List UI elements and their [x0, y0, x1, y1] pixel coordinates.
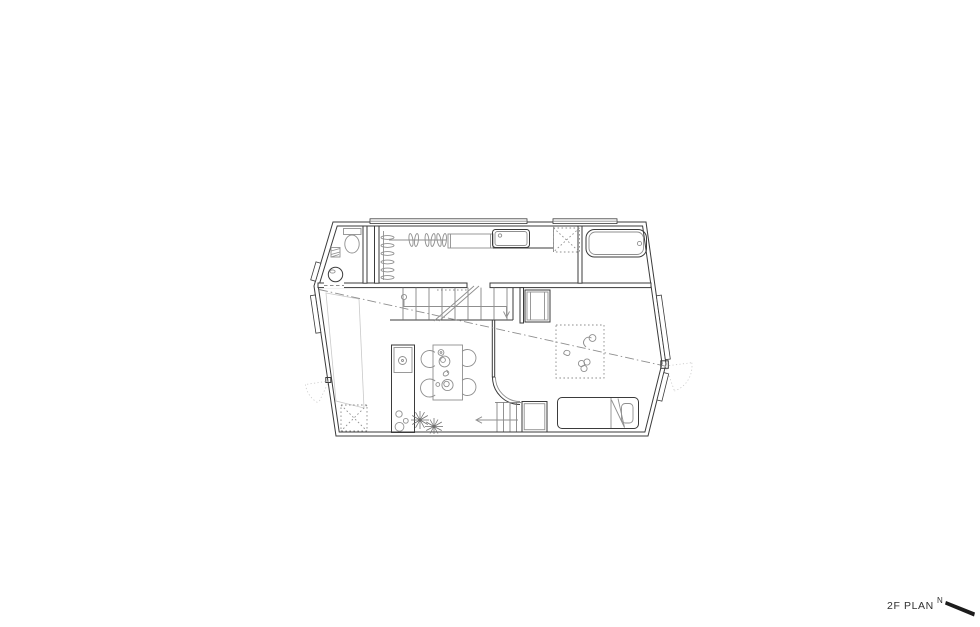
floor-plan-drawing	[0, 0, 980, 627]
play-rug	[556, 325, 604, 378]
bedroom-closet-lower	[522, 402, 547, 433]
bathtub	[586, 230, 647, 258]
toilet	[344, 229, 362, 254]
north-arrow-icon	[942, 597, 980, 622]
island-plants	[411, 411, 443, 434]
interior-walls	[318, 226, 651, 405]
toys	[564, 335, 596, 372]
dining-table	[433, 345, 463, 400]
skylight-hatch-bottom	[341, 405, 367, 431]
clothes-hanger-rack	[381, 231, 447, 280]
bedroom-closet-upper	[525, 290, 550, 322]
closet-shelf	[448, 234, 493, 248]
plan-title: 2F PLAN	[887, 600, 934, 612]
skylight-hatch-top	[554, 228, 580, 252]
single-bed	[558, 398, 639, 429]
faint-light-region	[326, 293, 364, 408]
kitchen-island	[392, 345, 415, 433]
wc-shelf	[331, 248, 340, 258]
washbasin-counter	[493, 226, 554, 252]
floor-plan-canvas: 2F PLAN N	[0, 0, 980, 627]
lower-staircase	[476, 403, 522, 432]
dining-chairs	[421, 350, 476, 398]
hand-wash-basin	[328, 267, 342, 281]
main-staircase	[401, 286, 509, 321]
